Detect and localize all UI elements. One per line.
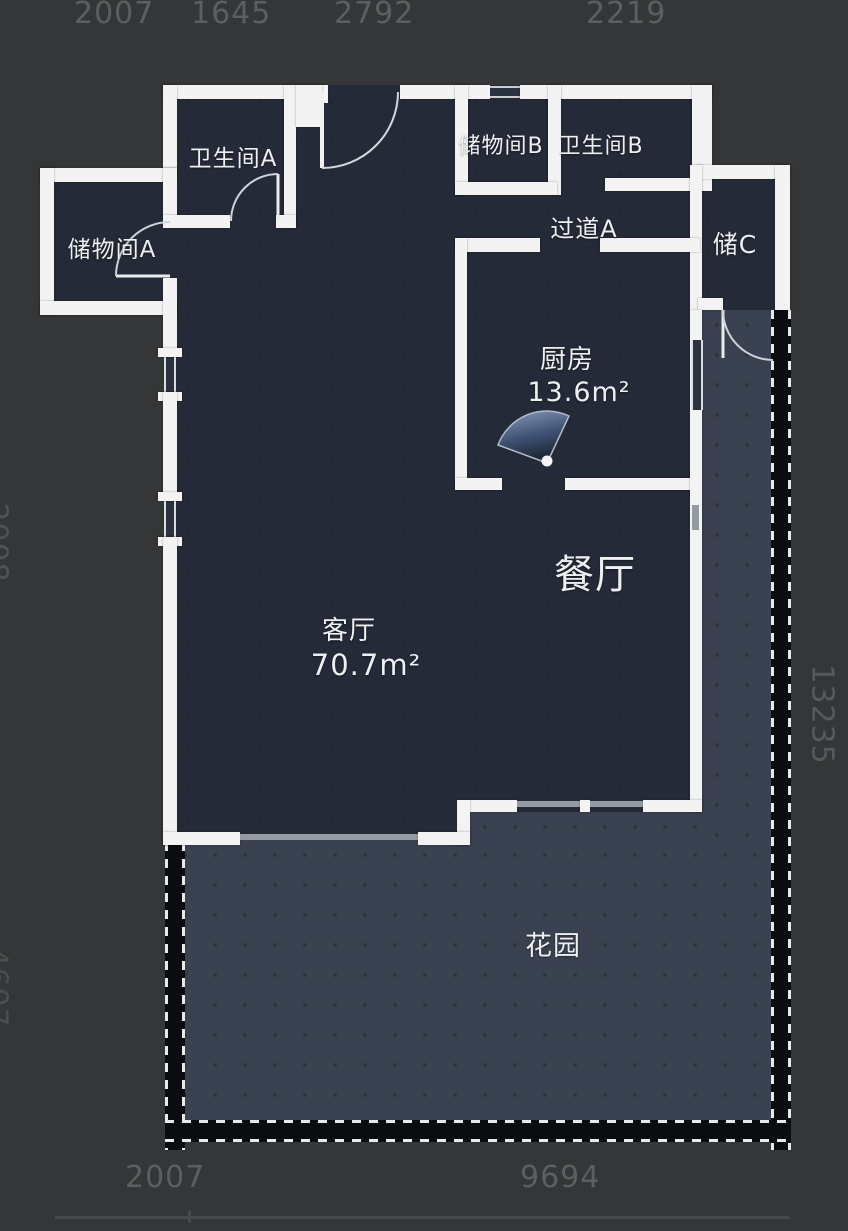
- room-label-bathroom-b[interactable]: 卫生间B: [521, 128, 681, 160]
- entry-door-arc: [322, 92, 398, 168]
- room-label-bathroom-a[interactable]: 卫生间A: [153, 139, 313, 173]
- room-label-storage-c[interactable]: 储C: [675, 225, 795, 261]
- fan-sensor-icon: [498, 411, 569, 466]
- room-label-hallway-a[interactable]: 过道A: [504, 209, 664, 244]
- storage-c-door-arc: [723, 310, 773, 360]
- room-label-storage-a[interactable]: 储物间A: [32, 230, 192, 264]
- room-label-garden[interactable]: 花园: [473, 924, 633, 963]
- room-area-living: 70.7m²: [276, 648, 456, 682]
- room-label-dining[interactable]: 餐厅: [495, 542, 695, 600]
- room-label-kitchen[interactable]: 厨房: [487, 339, 647, 376]
- room-area-kitchen: 13.6m²: [489, 377, 669, 408]
- floor-plan-canvas: 2007 1645 2792 2219 13235 2008 4607 2007…: [0, 0, 848, 1231]
- room-label-living[interactable]: 客厅: [269, 610, 429, 647]
- bathroom-a-door-arc: [231, 174, 278, 221]
